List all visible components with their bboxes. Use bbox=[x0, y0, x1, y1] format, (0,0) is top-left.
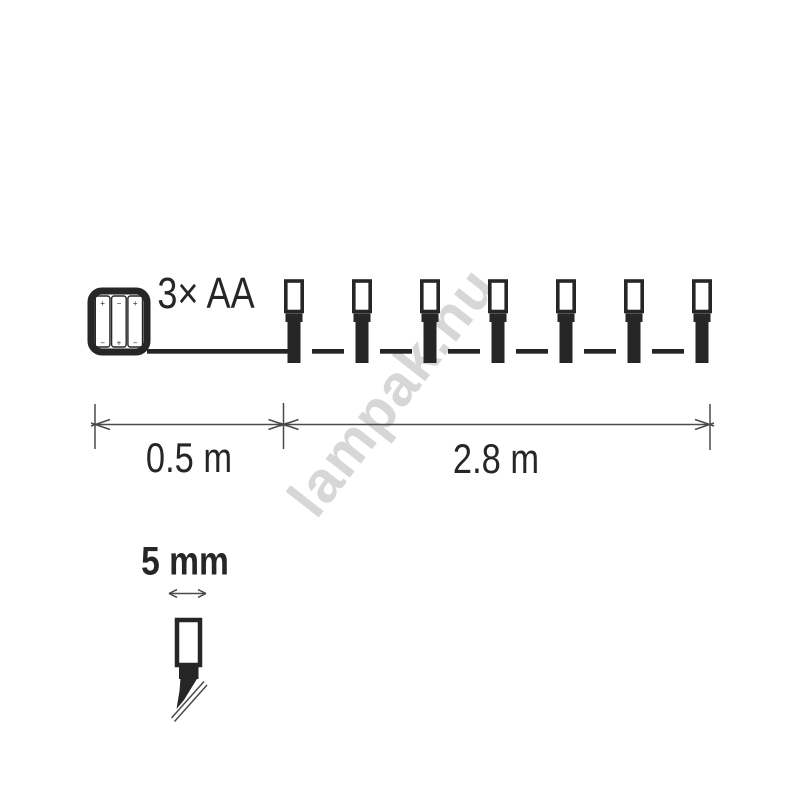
wire-dash bbox=[448, 349, 480, 354]
led-detail bbox=[172, 620, 208, 722]
led-detail-head bbox=[177, 620, 200, 665]
product-dimension-diagram: lampak.hu +−−++− bbox=[0, 0, 800, 800]
led-bulb bbox=[286, 281, 303, 363]
led-bulb-head bbox=[558, 281, 574, 312]
string-length-label: 2.8 m bbox=[453, 435, 539, 483]
battery-count-label: 3× AA bbox=[157, 269, 254, 319]
battery-cell: −+ bbox=[112, 296, 127, 348]
led-bulb bbox=[490, 281, 507, 363]
led-bulb bbox=[354, 281, 371, 363]
battery-polarity-mark: − bbox=[133, 339, 138, 348]
battery-polarity-mark: + bbox=[117, 339, 122, 348]
led-bulb-head bbox=[694, 281, 710, 312]
led-bulb bbox=[694, 281, 711, 363]
lead-length-label: 0.5 m bbox=[146, 434, 232, 482]
led-bulb bbox=[422, 281, 439, 363]
led-detail-wire bbox=[177, 678, 198, 709]
led-bulb-head bbox=[490, 281, 506, 312]
led-bulb bbox=[626, 281, 643, 363]
battery-polarity-mark: + bbox=[100, 299, 105, 308]
battery-box: +−−++− bbox=[91, 291, 147, 352]
battery-polarity-mark: − bbox=[100, 339, 105, 348]
led-bulbs-group bbox=[286, 281, 711, 363]
diagram-svg: +−−++− bbox=[0, 0, 800, 800]
led-bulb-head bbox=[354, 281, 370, 312]
wire-dash bbox=[380, 349, 412, 354]
led-size-label: 5 mm bbox=[141, 540, 229, 585]
wire-dash bbox=[584, 349, 616, 354]
battery-polarity-mark: + bbox=[133, 299, 138, 308]
wire-dash bbox=[312, 349, 344, 354]
led-bulb-head bbox=[626, 281, 642, 312]
wire-dash bbox=[652, 349, 684, 354]
led-bulb-head bbox=[422, 281, 438, 312]
led-bulb-head bbox=[286, 281, 302, 312]
wire-dash bbox=[516, 349, 548, 354]
led-detail-base bbox=[179, 666, 199, 679]
batteries-group: +−−++− bbox=[95, 296, 142, 348]
lead-wire bbox=[147, 349, 289, 354]
led-bulb bbox=[558, 281, 575, 363]
battery-polarity-mark: − bbox=[117, 299, 122, 308]
battery-cell: +− bbox=[95, 296, 110, 348]
double-headed-arrow-icon bbox=[169, 590, 206, 598]
battery-cell: +− bbox=[128, 296, 143, 348]
